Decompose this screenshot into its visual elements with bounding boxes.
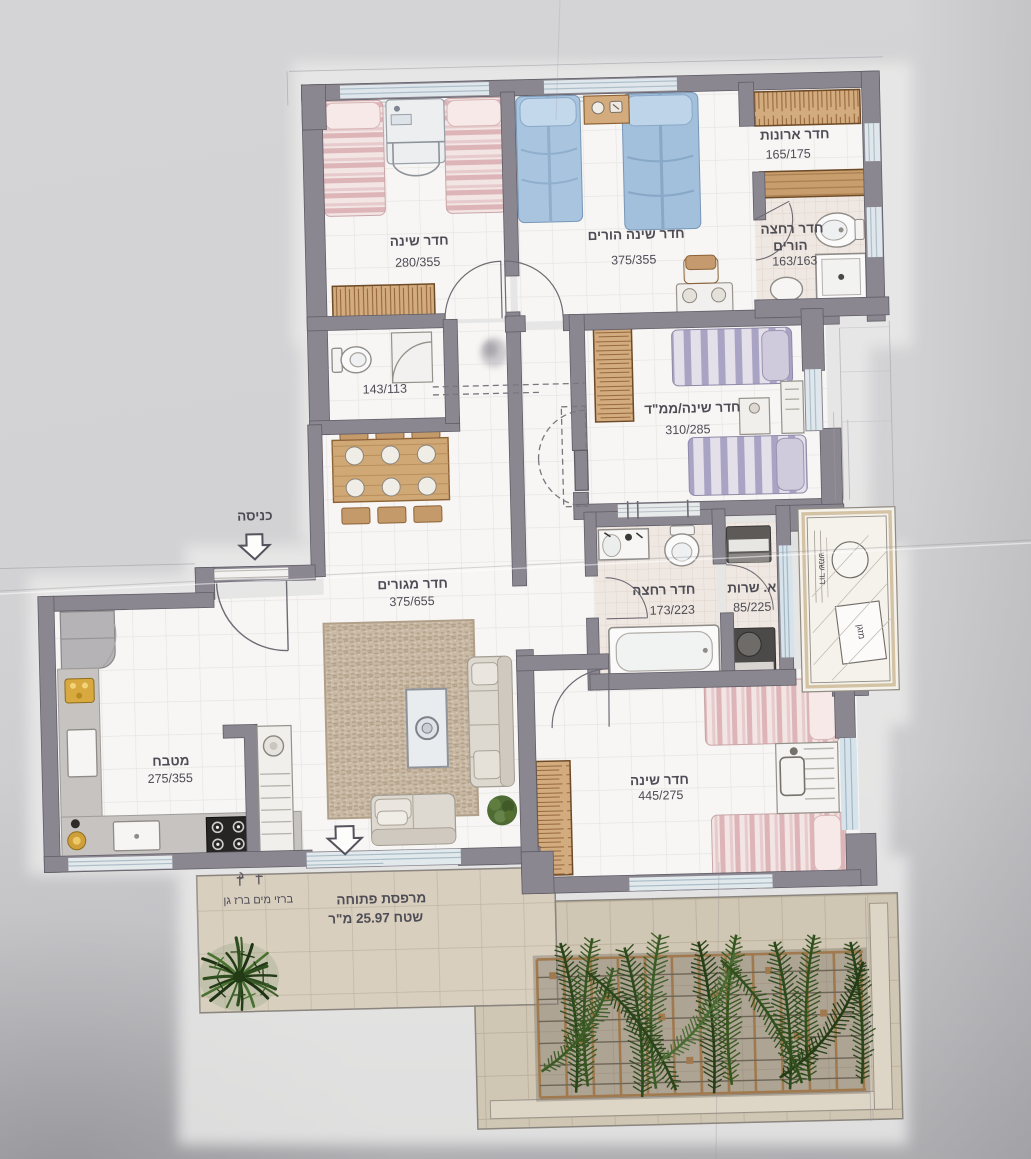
svg-text:כניסה: כניסה bbox=[237, 508, 273, 524]
svg-text:חדר רחצה: חדר רחצה bbox=[760, 220, 823, 237]
svg-text:חדר שינה הורים: חדר שינה הורים bbox=[587, 226, 684, 243]
svg-text:הורים: הורים bbox=[773, 238, 808, 254]
svg-text:445/275: 445/275 bbox=[638, 788, 684, 803]
svg-text:חדר מגורים: חדר מגורים bbox=[377, 576, 448, 593]
svg-text:חדר שינה/ממ"ד: חדר שינה/ממ"ד bbox=[644, 399, 741, 416]
svg-text:א. שרות: א. שרות bbox=[727, 580, 776, 596]
svg-text:חדר שינה: חדר שינה bbox=[630, 772, 689, 788]
svg-text:מטבח: מטבח bbox=[152, 753, 190, 769]
svg-text:280/355: 280/355 bbox=[395, 255, 441, 270]
svg-text:דוד שמש: דוד שמש bbox=[817, 552, 828, 585]
svg-text:143/113: 143/113 bbox=[363, 382, 408, 397]
svg-text:375/355: 375/355 bbox=[611, 252, 657, 267]
svg-text:חדר רחצה: חדר רחצה bbox=[632, 582, 695, 599]
svg-text:ברזי מים ברז גן: ברזי מים ברז גן bbox=[223, 894, 293, 908]
svg-text:275/355: 275/355 bbox=[147, 771, 193, 786]
svg-text:173/223: 173/223 bbox=[650, 603, 696, 618]
svg-text:375/655: 375/655 bbox=[389, 594, 435, 609]
svg-text:163/163: 163/163 bbox=[772, 254, 818, 269]
svg-text:חדר שינה: חדר שינה bbox=[390, 233, 449, 249]
svg-text:165/175: 165/175 bbox=[765, 147, 811, 162]
svg-text:חדר ארונות: חדר ארונות bbox=[760, 126, 830, 143]
svg-text:מרפסת פתוחה: מרפסת פתוחה bbox=[336, 890, 426, 907]
svg-text:310/285: 310/285 bbox=[665, 422, 711, 437]
svg-text:85/225: 85/225 bbox=[733, 600, 772, 615]
svg-text:שטח 25.97 מ"ר: שטח 25.97 מ"ר bbox=[328, 909, 423, 926]
